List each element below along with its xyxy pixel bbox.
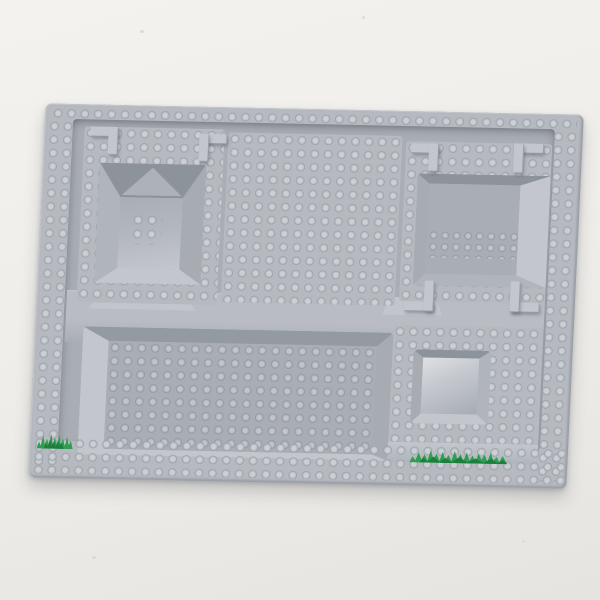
corner-bracket [90,126,119,155]
field-studs [104,341,377,455]
background-speck [522,540,525,543]
platform-bottom-right [388,325,544,450]
small-pit-bottom-right [410,349,491,425]
corner-bracket [198,134,227,163]
lego-baseplate [28,104,584,489]
corner-bracket [403,280,434,311]
rect-recess-top-right [413,173,551,288]
stud-platform-top-middle [221,132,403,306]
background-speck [92,556,96,559]
pit-floor-studs-2x2 [130,213,162,245]
photo-background [0,0,600,600]
background-speck [362,16,365,19]
background-speck [140,30,144,33]
corner-bracket [513,143,544,174]
grass-strip-print-right [409,448,508,464]
grass-tuft-print-left [36,431,75,449]
corner-bracket [410,143,439,172]
corner-bracket [509,281,540,312]
recess-floor-studs [427,230,518,260]
